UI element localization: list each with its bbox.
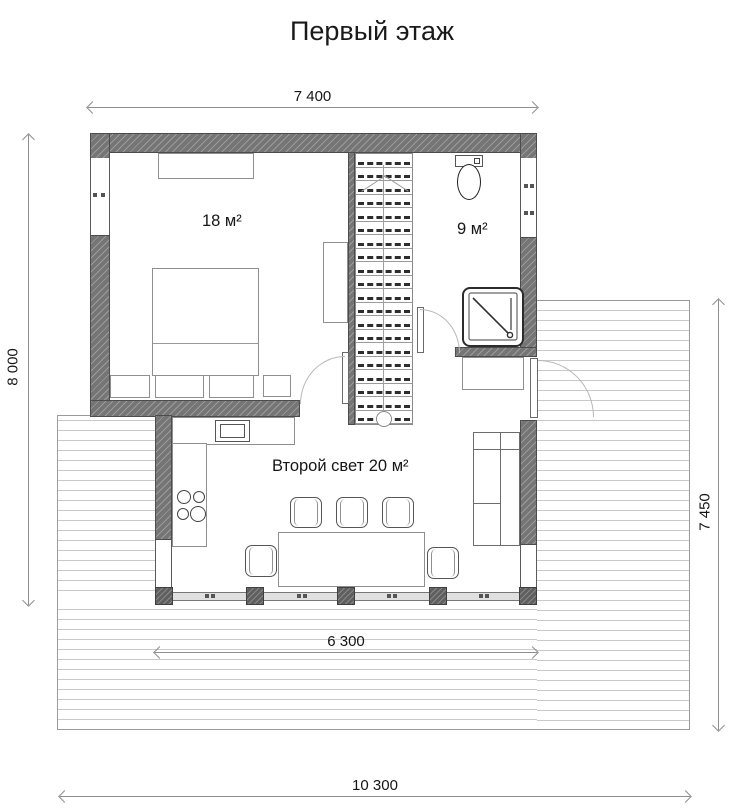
- window-living-right: [520, 545, 537, 588]
- bathroom-area-label: 9 м²: [457, 220, 488, 239]
- bedroom-area-label: 18 м²: [202, 212, 242, 231]
- pillar: [337, 587, 355, 605]
- stair-start-circle: [376, 411, 392, 427]
- dining-chair: [290, 497, 322, 528]
- nightstand-right: [263, 375, 291, 397]
- glazing-tick: [303, 594, 307, 598]
- wall-bedroom-left-lower: [90, 235, 110, 417]
- toilet-bowl: [457, 164, 481, 200]
- wall-right-lower: [520, 420, 537, 545]
- window-mullion-dot: [524, 211, 528, 215]
- window-bathroom-right: [520, 158, 537, 237]
- glazing-tick: [393, 594, 397, 598]
- stove: [174, 487, 206, 525]
- wardrobe: [323, 242, 348, 323]
- dimension-terrace: 6 300: [155, 633, 537, 655]
- window-living-left: [155, 540, 172, 588]
- floor-plan-canvas: Первый этаж: [0, 0, 744, 810]
- glazing-tick: [297, 594, 301, 598]
- wall-top: [90, 133, 537, 153]
- dimension-left-value: 8 000: [5, 348, 22, 386]
- glazing-tick: [205, 594, 209, 598]
- pillar: [519, 587, 537, 605]
- page-title: Первый этаж: [0, 16, 744, 47]
- dimension-total: 10 300: [60, 777, 690, 799]
- dining-chair: [245, 545, 277, 577]
- glazing-tick: [387, 594, 391, 598]
- dining-chair: [427, 547, 459, 579]
- bed: [152, 268, 259, 376]
- dimension-right-value: 7 450: [697, 493, 714, 531]
- pillar: [246, 587, 264, 605]
- dimension-terrace-value: 6 300: [327, 633, 365, 650]
- terrace-door-leaf: [530, 358, 538, 418]
- terrace-deck-left: [57, 415, 155, 605]
- dimension-total-value: 10 300: [352, 777, 398, 794]
- pillar: [155, 587, 173, 605]
- window-mullion-dot: [524, 184, 528, 188]
- dining-chair: [336, 497, 368, 528]
- wall-living-left: [155, 415, 172, 540]
- closet: [158, 153, 254, 179]
- wall-bedroom-left-upper: [90, 133, 110, 160]
- bed-pillow-right: [209, 375, 254, 398]
- dimension-top-value: 7 400: [294, 88, 332, 105]
- wall-stair-partition: [348, 152, 355, 425]
- glazing-tick: [479, 594, 483, 598]
- living-area-label: Второй свет 20 м²: [272, 457, 409, 476]
- glazing-tick: [485, 594, 489, 598]
- window-mullion-dot: [530, 211, 534, 215]
- window-mullion-dot: [530, 184, 534, 188]
- dining-chair: [382, 497, 414, 528]
- window-mullion-dot: [101, 193, 105, 197]
- pillar: [429, 587, 447, 605]
- sofa: [473, 432, 520, 546]
- glazing-tick: [211, 594, 215, 598]
- bed-pillow-left: [155, 375, 204, 398]
- nightstand-left: [110, 375, 150, 398]
- window-mullion-dot: [93, 193, 97, 197]
- terrace-deck-bottom: [57, 605, 537, 730]
- dimension-right: 7 450: [710, 300, 728, 730]
- dimension-top: 7 400: [88, 88, 537, 110]
- wall-right-top: [520, 133, 537, 160]
- shower-step: [462, 357, 524, 390]
- kitchen-sink: [215, 420, 250, 442]
- stair-direction-line: [383, 165, 384, 415]
- shower-tray: [462, 287, 524, 347]
- wall-bedroom-bottom: [90, 400, 300, 417]
- wall-bathroom-bottom: [455, 347, 537, 357]
- dining-table: [278, 532, 425, 587]
- dimension-left: 8 000: [20, 135, 38, 605]
